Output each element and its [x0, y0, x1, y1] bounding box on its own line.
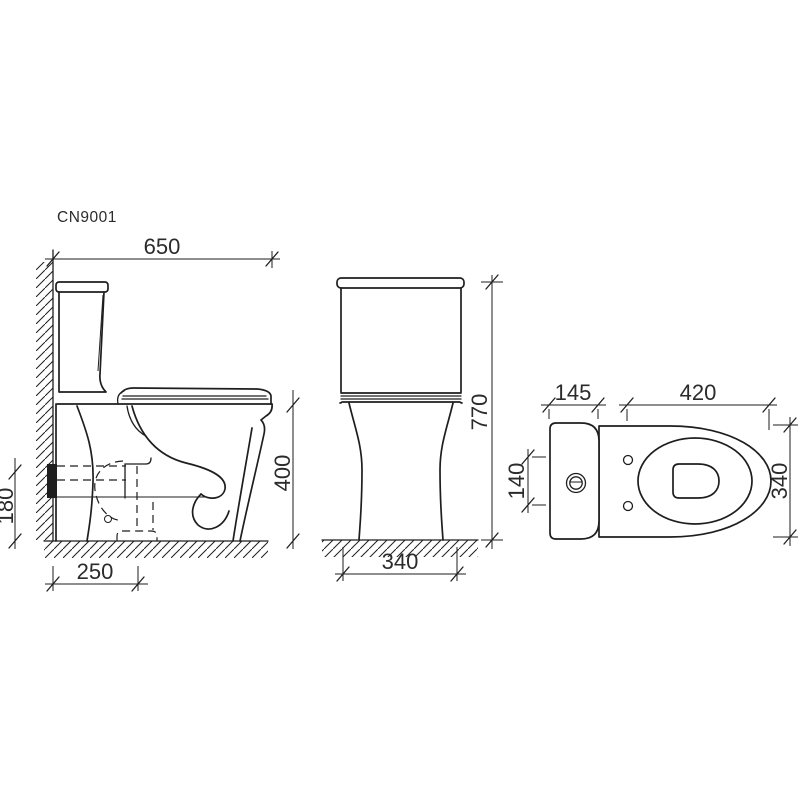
model-label: CN9001 — [57, 209, 117, 226]
floor-hatching-side — [44, 541, 268, 558]
dim-top-tank-depth: 145 — [541, 380, 606, 419]
wall-outlet-block — [47, 464, 57, 498]
dim-value-180: 180 — [0, 488, 18, 525]
dim-value-250: 250 — [77, 559, 114, 584]
side-view: 650 400 180 250 — [0, 234, 299, 591]
dim-side-outlet-offset: 250 — [45, 559, 148, 591]
dim-top-bowl-width: 340 — [767, 417, 798, 546]
water-surface — [673, 464, 719, 498]
dim-front-height: 770 — [467, 275, 503, 549]
bowl-side-profile — [56, 404, 272, 541]
seat-lid-side-profile — [57, 388, 272, 404]
outlet-trap-detail — [47, 458, 206, 541]
dim-value-140: 140 — [504, 463, 529, 500]
hinge-hole-top — [624, 456, 633, 465]
dim-side-seat-height: 400 — [270, 390, 299, 549]
dim-value-340-top: 340 — [767, 463, 792, 500]
front-view: 770 340 — [322, 275, 503, 581]
hinge-hole-bottom — [624, 502, 633, 511]
bowl-front-profile — [349, 403, 453, 540]
technical-drawing-canvas: CN9001 — [0, 0, 800, 800]
fixing-hole-mark — [105, 516, 112, 523]
dim-top-button-span: 140 — [504, 449, 546, 513]
technical-drawing-page: CN9001 — [0, 0, 800, 800]
flush-button — [567, 474, 586, 493]
tank-side-profile — [56, 282, 108, 392]
dim-value-400: 400 — [270, 455, 295, 492]
dim-side-outlet-height: 180 — [0, 458, 21, 549]
wall-hatching — [36, 262, 53, 541]
dim-value-420: 420 — [680, 380, 717, 405]
dim-top-bowl-length: 420 — [619, 380, 777, 430]
dim-value-770: 770 — [467, 394, 492, 431]
dim-value-650: 650 — [144, 234, 181, 259]
tank-front-profile — [337, 278, 464, 403]
dim-value-340-front: 340 — [382, 549, 419, 574]
dim-value-145: 145 — [555, 380, 592, 405]
dim-side-depth: 650 — [45, 234, 280, 268]
top-view: 145 420 340 140 — [504, 380, 798, 546]
